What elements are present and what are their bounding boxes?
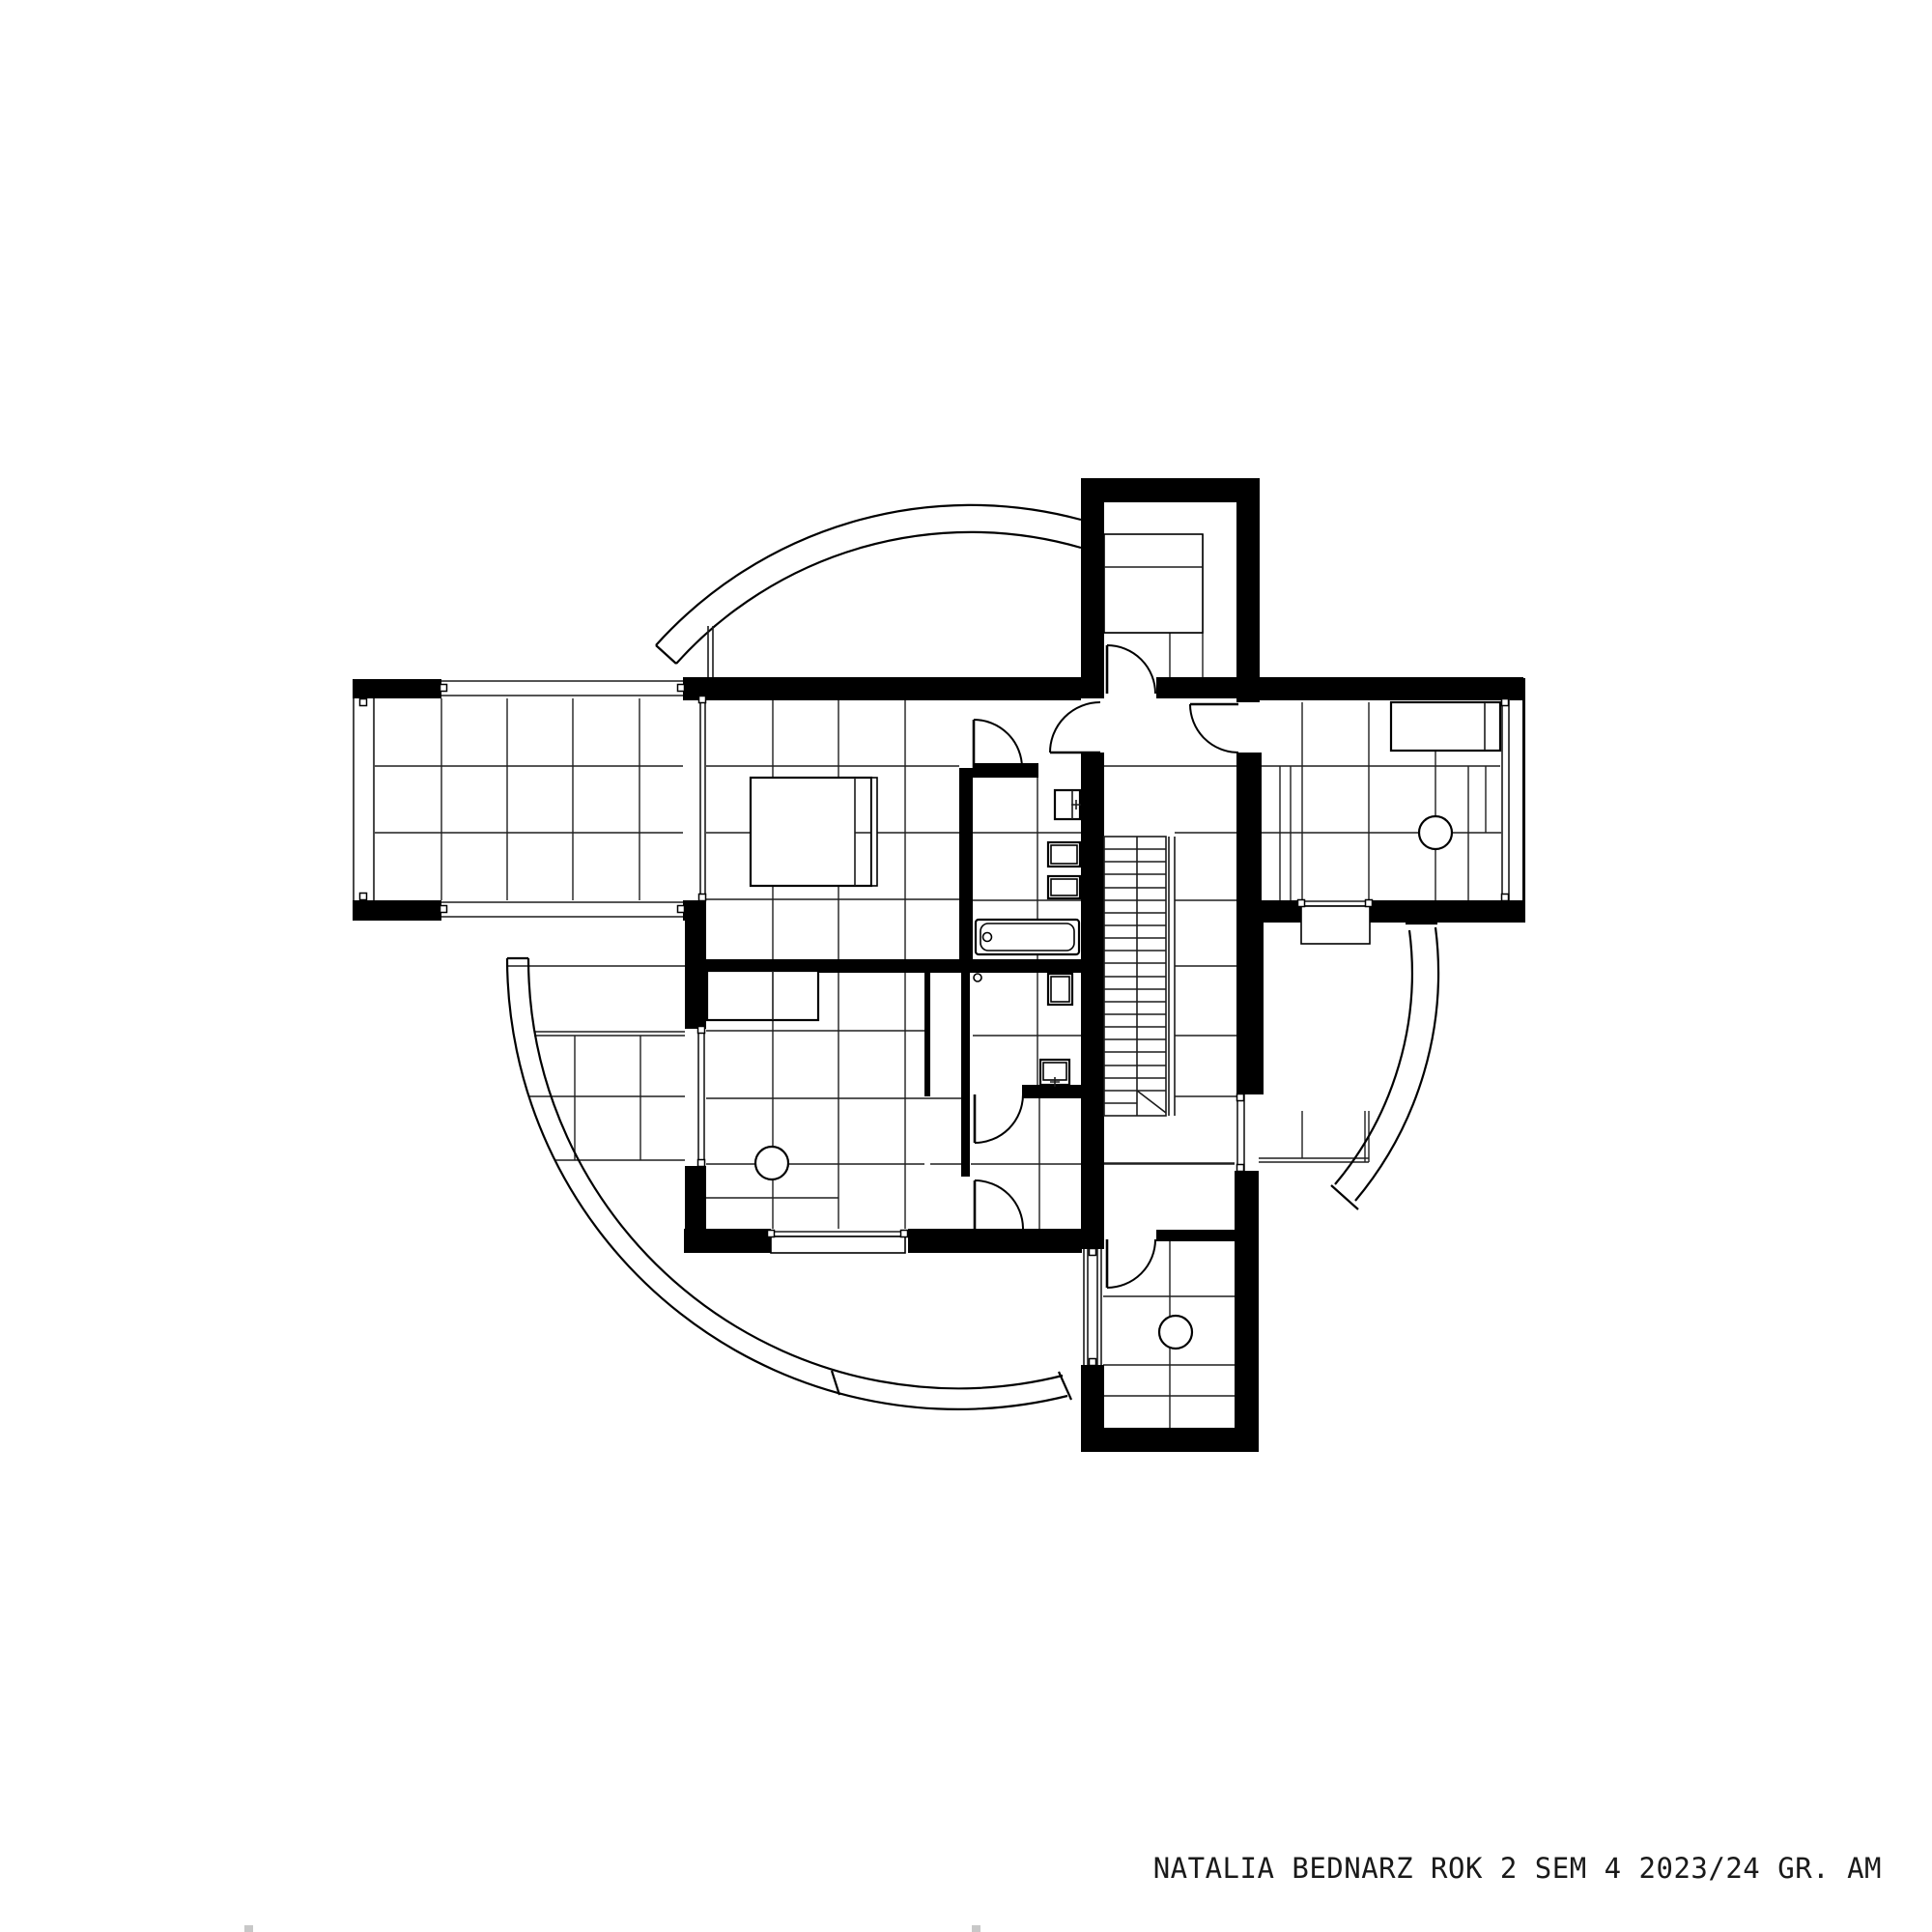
wall-top-wing-north bbox=[1081, 478, 1260, 502]
floor-drain bbox=[974, 974, 981, 981]
canopy-mullion bbox=[708, 626, 713, 677]
wall-kitchen-west-upper bbox=[685, 921, 706, 1029]
wall-top-wing-west bbox=[1081, 502, 1104, 698]
wall-top-wing-sill bbox=[1156, 677, 1260, 698]
bed bbox=[751, 778, 877, 886]
wall-right-wing-south-b bbox=[1369, 900, 1523, 923]
window-kitchen-west bbox=[698, 1029, 704, 1166]
kitchen-table bbox=[755, 1147, 788, 1179]
stair-treads bbox=[1104, 849, 1166, 1103]
top-canopy-arc bbox=[656, 505, 1081, 677]
wall-right-wing-west bbox=[1236, 753, 1262, 900]
wall-bottom-wing-south bbox=[1082, 1428, 1259, 1452]
window-left-end bbox=[354, 698, 374, 900]
wall-north-left-block bbox=[353, 679, 441, 698]
wall-kitchen-south-b bbox=[908, 1229, 1082, 1253]
floor-plan: NATALIA BEDNARZ ROK 2 SEM 4 2023/24 GR. … bbox=[0, 0, 1932, 1932]
wall-left-wing-south-block bbox=[353, 900, 441, 921]
tiles-left-wing bbox=[375, 698, 683, 900]
wall-bedroom-east bbox=[959, 768, 973, 971]
scale-bar-cutoff bbox=[244, 1925, 980, 1932]
wall-bottom-wing-partition bbox=[1156, 1230, 1235, 1241]
bathtub bbox=[976, 920, 1079, 954]
stair-rail bbox=[1169, 837, 1175, 1116]
window-left-wing-north bbox=[441, 681, 683, 696]
wall-stair-west bbox=[1081, 753, 1104, 1249]
wall-bath1-north bbox=[973, 763, 1038, 778]
bidet-1 bbox=[1048, 876, 1080, 898]
drawing-sheet: NATALIA BEDNARZ ROK 2 SEM 4 2023/24 GR. … bbox=[0, 0, 1932, 1932]
curved-walls bbox=[507, 505, 1438, 1409]
right-terrace-arc bbox=[1331, 923, 1438, 1209]
wall-kitchen-east bbox=[961, 971, 970, 1177]
glazing-markers bbox=[360, 685, 1509, 1366]
wall-bottom-wing-east bbox=[1235, 1171, 1259, 1452]
top-wing-closet bbox=[1104, 534, 1203, 633]
window-bottom-wing-west bbox=[1084, 1249, 1101, 1365]
washbasin-1 bbox=[1055, 790, 1081, 819]
tiles-bottom-wing bbox=[1082, 1163, 1235, 1428]
window-hall-southeast bbox=[1237, 1094, 1244, 1171]
wall-bath2-south bbox=[1022, 1085, 1084, 1098]
windows bbox=[354, 681, 1509, 1365]
glass-partition-bedroom bbox=[700, 702, 705, 900]
door-bottom-wing bbox=[1107, 1239, 1155, 1288]
washbasin-2 bbox=[1040, 1060, 1069, 1087]
wall-left-wing-south-corner bbox=[683, 900, 706, 921]
big-terrace-arc bbox=[507, 958, 1071, 1409]
wall-north-right bbox=[1260, 677, 1523, 700]
wall-hall-east-lower bbox=[1236, 923, 1264, 1094]
window-right-end bbox=[1502, 698, 1509, 900]
floor-tiles bbox=[375, 534, 1501, 1428]
tiles-right-terrace bbox=[1259, 1111, 1369, 1162]
wall-north-center bbox=[683, 677, 1081, 700]
title-block-text: NATALIA BEDNARZ ROK 2 SEM 4 2023/24 GR. … bbox=[1153, 1852, 1882, 1885]
right-wing-basin bbox=[1419, 816, 1452, 849]
wall-kitchen-shaft bbox=[924, 969, 930, 1096]
door-bedroom bbox=[974, 720, 1022, 768]
right-wing-furniture bbox=[1391, 702, 1500, 751]
tiles-left-terrace bbox=[508, 966, 685, 1160]
tiles-hall bbox=[1104, 766, 1236, 1164]
door-top-wing bbox=[1107, 645, 1155, 694]
toilet-1 bbox=[1048, 842, 1080, 867]
wall-top-wing-east bbox=[1236, 502, 1260, 702]
window-kitchen-south-sill bbox=[771, 1236, 905, 1253]
door-bathroom-2 bbox=[975, 1094, 1023, 1143]
wall-kitchen-south-a bbox=[684, 1229, 771, 1253]
window-left-wing-south bbox=[441, 902, 683, 917]
door-vestibule bbox=[975, 1180, 1023, 1229]
door-bathroom-1 bbox=[1050, 702, 1100, 753]
kitchen-counter bbox=[707, 971, 818, 1020]
wall-right-wing-south-a bbox=[1236, 900, 1302, 923]
window-right-wing-sill bbox=[1301, 906, 1370, 944]
door-right-wing bbox=[1190, 704, 1238, 753]
stair-break-line bbox=[1137, 1091, 1166, 1113]
toilet-2 bbox=[1048, 974, 1072, 1005]
bottom-wing-basin bbox=[1159, 1316, 1192, 1349]
staircase bbox=[1104, 837, 1175, 1116]
wall-right-end-cap bbox=[1522, 678, 1525, 923]
